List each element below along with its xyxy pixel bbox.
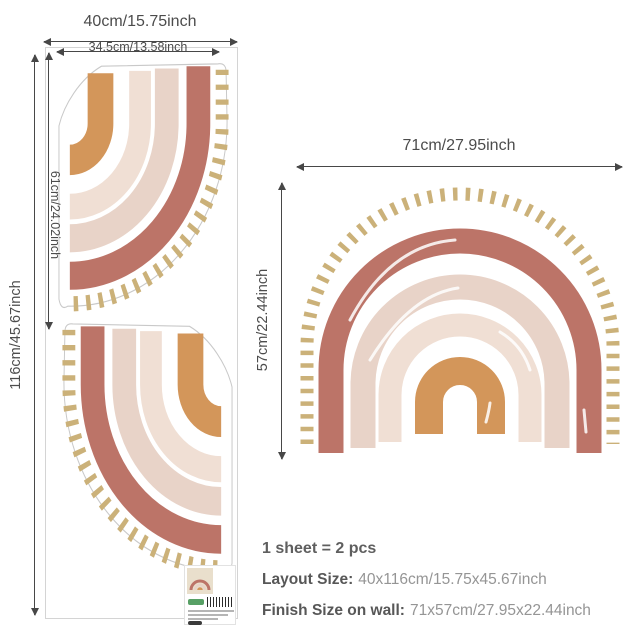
finish-size-text: Finish Size on wall:71x57cm/27.95x22.44i…: [262, 602, 591, 620]
piece-width-label: 34.5cm/13.58inch: [58, 40, 218, 54]
wall-width-label: 71cm/27.95inch: [379, 137, 539, 155]
label-text-line: [188, 614, 228, 616]
sheet-height-arrow: [34, 55, 35, 615]
rainbow-half-piece-top: [56, 58, 234, 353]
rainbow-band-orange: [429, 371, 491, 434]
piece-height-label: 61cm/24.02inch: [48, 140, 62, 290]
product-size-diagram: 40cm/15.75inch 34.5cm/13.58inch 116cm/45…: [0, 0, 640, 640]
wall-height-label: 57cm/22.44inch: [255, 245, 271, 395]
layout-size-label: Layout Size:: [262, 571, 353, 588]
finished-rainbow: [290, 170, 630, 460]
sheet-count-text: 1 sheet = 2 pcs: [262, 540, 376, 558]
barcode: [207, 597, 234, 607]
wall-width-arrow: [297, 166, 622, 167]
sheet-width-label: 40cm/15.75inch: [60, 13, 220, 31]
layout-size-value: 40x116cm/15.75x45.67inch: [358, 571, 546, 588]
sheet-height-label: 116cm/45.67inch: [8, 255, 24, 415]
product-label: [184, 565, 236, 625]
label-text-line: [188, 610, 234, 612]
label-badge: [188, 621, 202, 625]
finish-size-label: Finish Size on wall:: [262, 602, 405, 619]
wall-height-arrow: [281, 183, 282, 459]
label-text-line: [188, 618, 218, 620]
label-thumbnail-rainbow-icon: [187, 568, 213, 594]
finish-size-value: 71x57cm/27.95x22.44inch: [410, 602, 591, 619]
layout-size-text: Layout Size:40x116cm/15.75x45.67inch: [262, 571, 547, 589]
brand-logo: [188, 599, 204, 605]
label-photo-thumbnail: [187, 568, 213, 594]
